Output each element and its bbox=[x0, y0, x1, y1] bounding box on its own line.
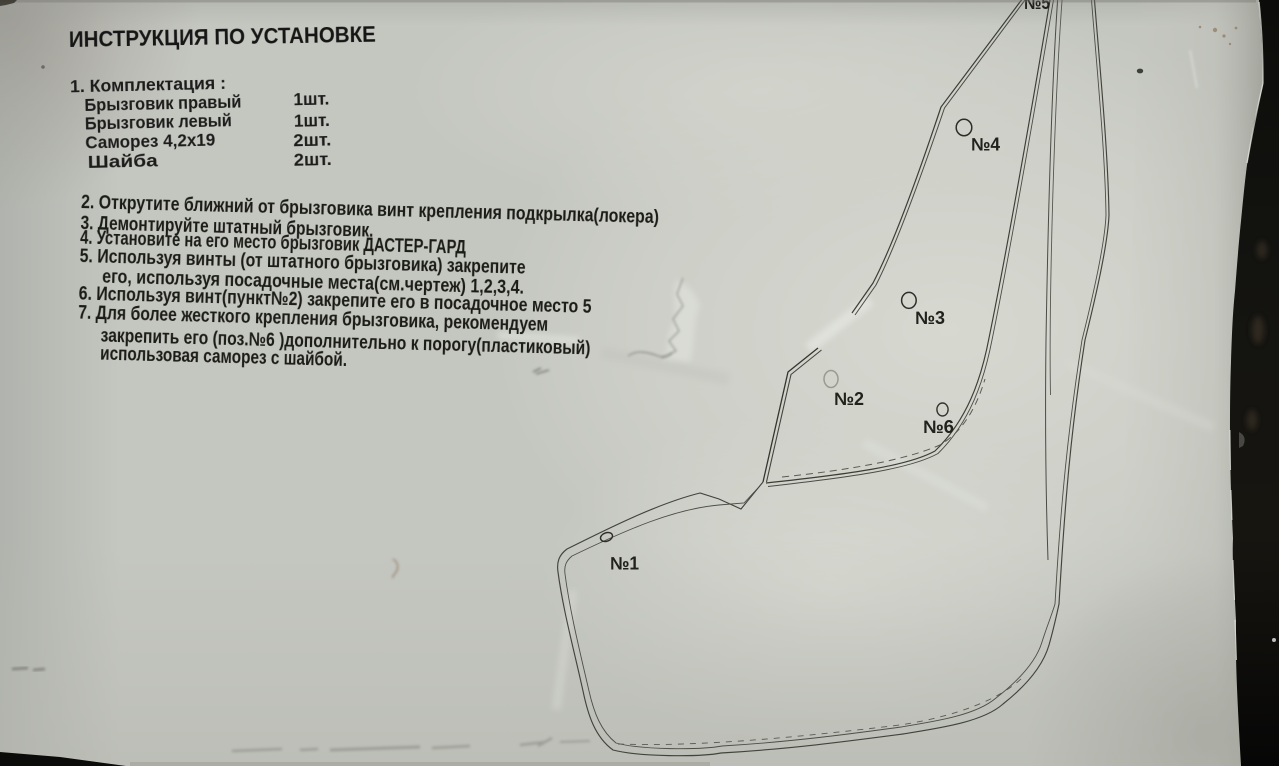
svg-text:№2: №2 bbox=[834, 389, 864, 409]
svg-text:№4: №4 bbox=[971, 135, 1000, 155]
svg-text:1шт.: 1шт. bbox=[293, 88, 329, 109]
svg-text:2шт.: 2шт. bbox=[294, 149, 332, 170]
svg-text:ИНСТРУКЦИЯ ПО УСТАНОВКЕ: ИНСТРУКЦИЯ ПО УСТАНОВКЕ bbox=[69, 22, 376, 52]
svg-text:2шт.: 2шт. bbox=[293, 129, 331, 150]
svg-text:№6: №6 bbox=[923, 417, 954, 437]
svg-text:Саморез 4,2х19: Саморез 4,2х19 bbox=[85, 130, 216, 153]
svg-text:Шайба: Шайба bbox=[87, 150, 158, 172]
svg-text:1шт.: 1шт. bbox=[294, 110, 330, 131]
svg-text:№1: №1 bbox=[610, 554, 639, 574]
svg-text:№3: №3 bbox=[915, 308, 945, 328]
